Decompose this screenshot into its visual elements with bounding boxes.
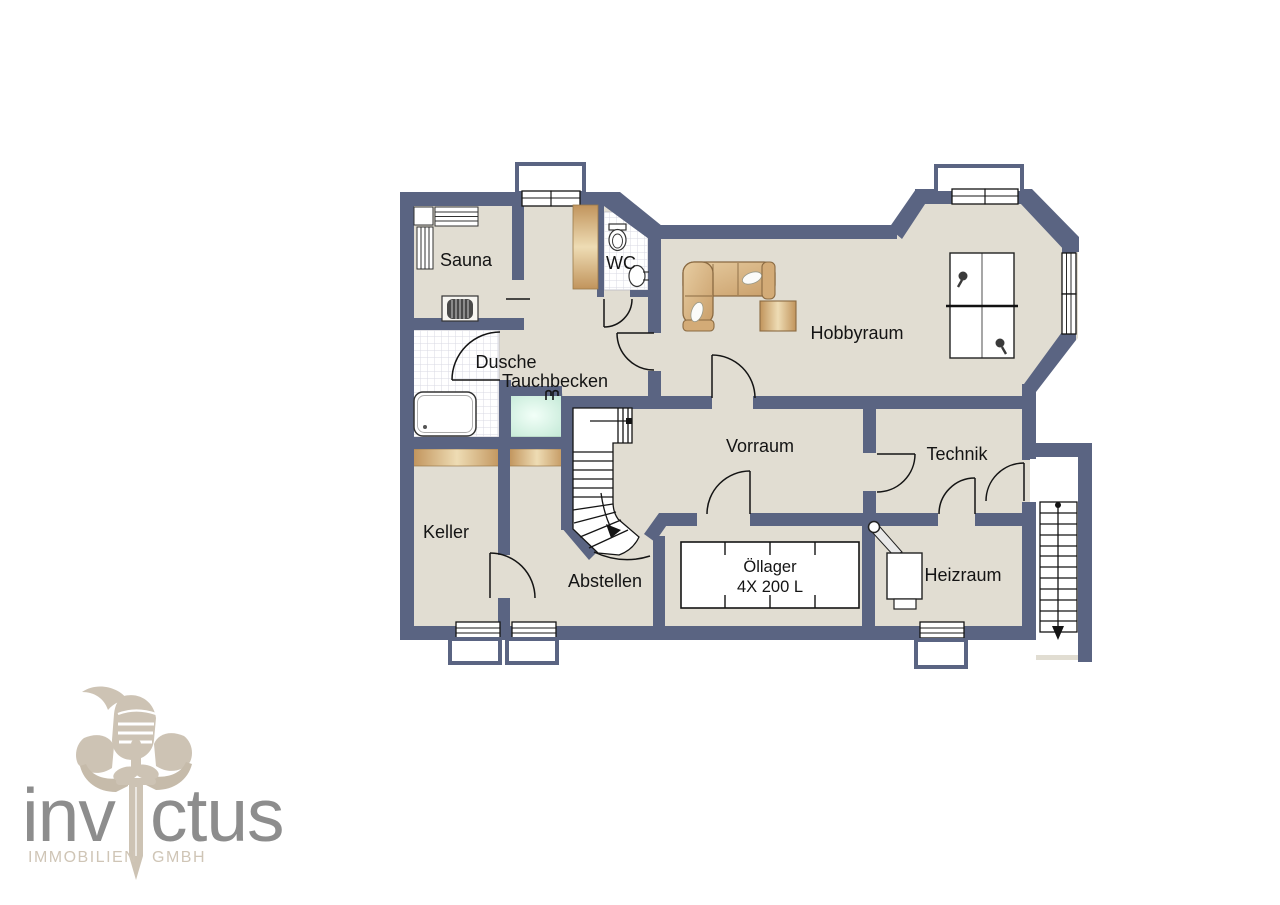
wardrobe <box>573 205 598 289</box>
window-heizraum <box>920 622 964 638</box>
wood-shelf-right <box>509 449 565 466</box>
window-keller <box>456 622 500 638</box>
room-label-technik: Technik <box>926 444 988 464</box>
light-well-heizraum <box>916 640 966 667</box>
window-right-upper <box>1062 253 1076 294</box>
logo-subtitle-right: GMBH <box>152 849 206 866</box>
toilet <box>609 224 626 251</box>
room-label-heizraum: Heizraum <box>924 565 1001 585</box>
oil-storage-capacity: 4X 200 L <box>737 578 803 596</box>
window-abstellen <box>512 622 556 638</box>
logo-brand-left: inv <box>22 773 116 857</box>
sauna-stove <box>442 296 478 321</box>
light-well-top <box>517 164 584 193</box>
table-tennis-table <box>946 253 1018 358</box>
window-top <box>522 191 580 206</box>
company-logo: inv ctus IMMOBILIEN GMBH <box>22 686 284 880</box>
chimney-connection <box>869 522 880 533</box>
light-well-keller <box>450 639 500 663</box>
room-label-abstellen: Abstellen <box>568 571 642 591</box>
logo-brand-right: ctus <box>150 773 284 857</box>
room-label-dusche: Dusche <box>475 352 536 372</box>
window-bay <box>952 189 1018 204</box>
window-right-lower <box>1062 294 1076 334</box>
logo-subtitle-left: IMMOBILIEN <box>28 849 137 866</box>
wood-shelf-left <box>413 449 501 466</box>
stair-start-dot <box>626 418 632 424</box>
room-label-vorraum: Vorraum <box>726 436 794 456</box>
room-label-keller: Keller <box>423 522 469 542</box>
floor-plan: Sauna WC Hobbyraum Dusche Tauchbecken Vo… <box>0 0 1280 905</box>
oil-storage-label: Öllager <box>743 558 797 576</box>
shower-tray <box>414 392 476 436</box>
floor-plan-page: Sauna WC Hobbyraum Dusche Tauchbecken Vo… <box>0 0 1280 905</box>
light-well-abstellen <box>507 639 557 663</box>
room-label-sauna: Sauna <box>440 250 493 270</box>
room-label-tauchbecken: Tauchbecken <box>502 371 608 391</box>
room-label-hobbyraum: Hobbyraum <box>810 323 903 343</box>
exterior-stair-start-dot <box>1055 502 1061 508</box>
coffee-table <box>760 301 796 331</box>
exterior-staircase <box>1036 457 1078 655</box>
plunge-pool <box>506 394 562 437</box>
room-label-wc: WC <box>606 253 636 273</box>
